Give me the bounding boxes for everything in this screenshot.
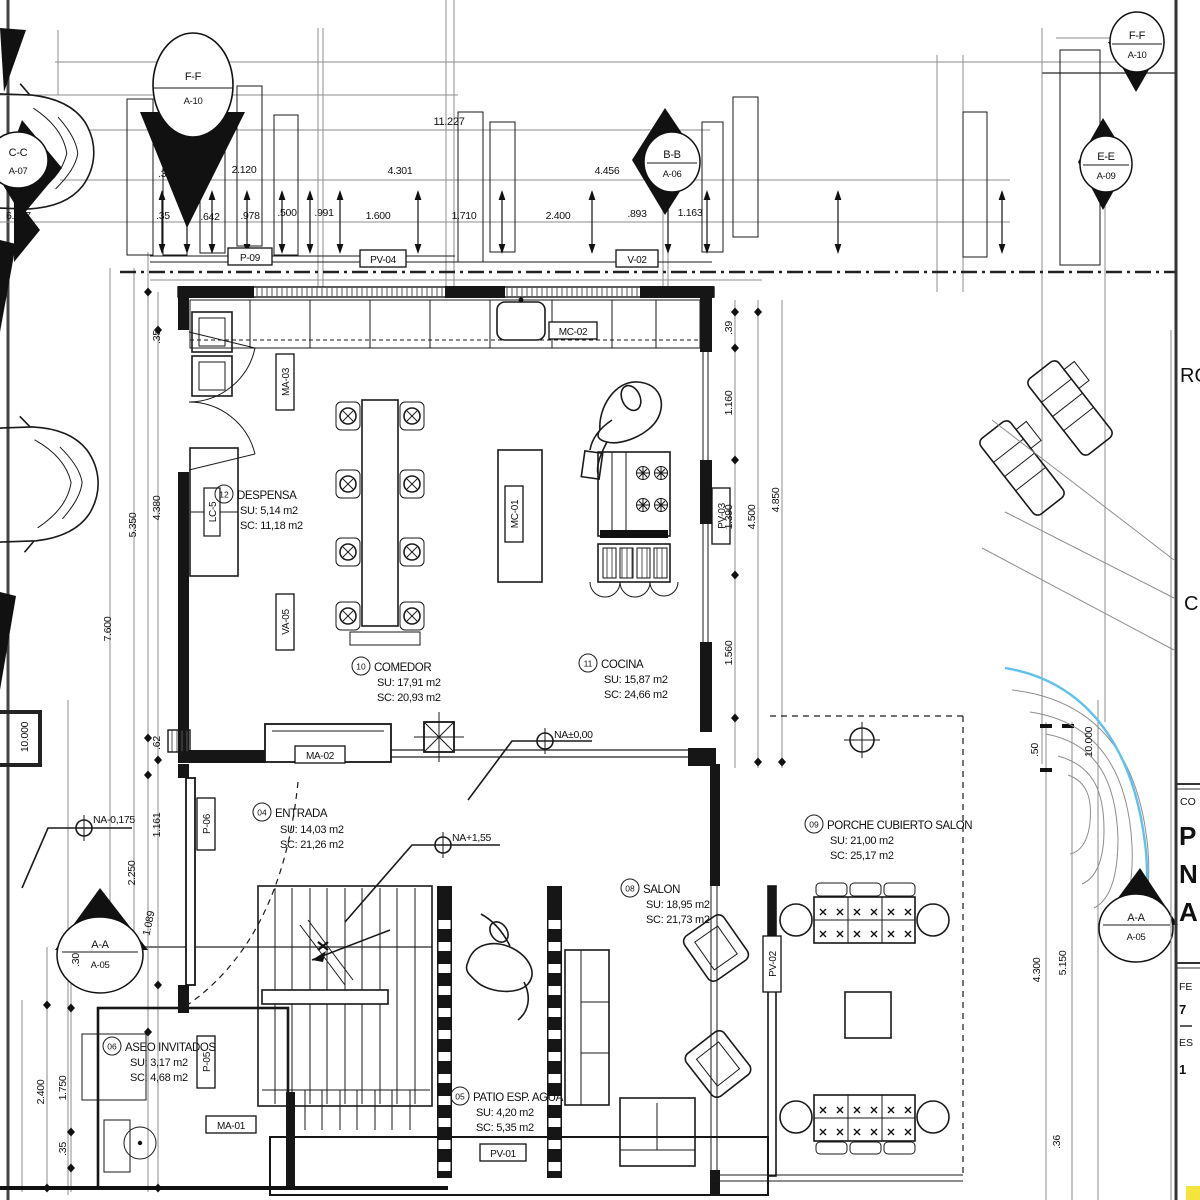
dining-area <box>336 400 424 645</box>
svg-text:PV-01: PV-01 <box>490 1149 516 1160</box>
svg-text:SC: 11,18 m2: SC: 11,18 m2 <box>240 520 303 532</box>
tag-pv02: PV-02 <box>763 936 781 992</box>
room-label-salon: 08 SALON SU: 18,95 m2 SC: 21,73 m2 <box>621 879 710 926</box>
dim: 4.301 <box>388 165 413 177</box>
tag-lc5: LC-5 <box>204 488 220 536</box>
dim: 1.600 <box>366 210 391 222</box>
svg-text:PV-02: PV-02 <box>768 950 779 976</box>
section-marker-ee: E-E A-09 <box>1078 118 1132 210</box>
room-label-entrada: 04 ENTRADA SU: 14,03 m2 SC: 21,26 m2 <box>253 803 344 851</box>
svg-text:09: 09 <box>809 820 819 830</box>
patio-figure <box>466 914 532 1020</box>
svg-text:MA-01: MA-01 <box>217 1121 246 1132</box>
svg-text:PORCHE CUBIERTO SALON: PORCHE CUBIERTO SALON <box>827 820 972 832</box>
svg-text:PV-04: PV-04 <box>370 255 396 266</box>
titleblock-text-ro: RO <box>1180 365 1200 387</box>
dim: 1.390 <box>723 504 735 529</box>
svg-text:ENTRADA: ENTRADA <box>275 808 328 820</box>
property-line <box>120 272 1175 280</box>
svg-text:PATIO ESP. AGUA: PATIO ESP. AGUA <box>473 1092 564 1104</box>
svg-text:SU: 18,95 m2: SU: 18,95 m2 <box>646 899 710 911</box>
person-figure <box>581 382 661 479</box>
svg-text:DESPENSA: DESPENSA <box>237 490 297 502</box>
aseo-fixtures <box>82 1034 156 1172</box>
dim: 5.150 <box>1057 950 1069 975</box>
dim: 11.227 <box>433 116 464 128</box>
marker-label: F-F <box>1129 30 1146 42</box>
svg-text:MA-03: MA-03 <box>281 367 292 396</box>
marker-label: F-F <box>185 71 202 83</box>
dim: .50 <box>1029 743 1041 757</box>
svg-text:P-09: P-09 <box>240 253 261 264</box>
room-label-comedor: 10 COMEDOR SU: 17,91 m2 SC: 20,93 m2 <box>352 657 441 704</box>
tag-mc02: MC-02 <box>549 322 597 339</box>
svg-text:MC-02: MC-02 <box>559 327 588 338</box>
marker-sheet: A-10 <box>1128 50 1147 61</box>
dim: .642 <box>200 211 220 223</box>
dim: 4.300 <box>1031 957 1043 982</box>
titleblock-text-fe: FE <box>1179 981 1192 993</box>
floor-plan-canvas: F-F A-10 F-F A-10 C-C A-07 B-B A-06 E-E … <box>0 0 1200 1200</box>
dim: 1.560 <box>723 640 735 665</box>
svg-text:11: 11 <box>584 659 593 669</box>
svg-text:SU: 15,87 m2: SU: 15,87 m2 <box>604 674 668 686</box>
floor-plan-svg: F-F A-10 F-F A-10 C-C A-07 B-B A-06 E-E … <box>0 0 1200 1200</box>
svg-text:SC: 20,93 m2: SC: 20,93 m2 <box>377 692 441 704</box>
svg-text:SALON: SALON <box>643 884 680 896</box>
svg-text:SC: 25,17 m2: SC: 25,17 m2 <box>830 850 894 862</box>
porch-furniture <box>780 883 949 1154</box>
marker-sheet: A-10 <box>184 96 203 107</box>
svg-text:SC: 21,73 m2: SC: 21,73 m2 <box>646 914 710 926</box>
dim: 7.600 <box>102 616 114 641</box>
dim: 10.000 <box>19 721 31 752</box>
svg-text:V-02: V-02 <box>627 255 647 266</box>
svg-text:MC-01: MC-01 <box>510 499 521 528</box>
marker-label: E-E <box>1097 151 1114 163</box>
level-zero: NA±0,00 <box>468 728 593 800</box>
highlight-square <box>1186 1186 1200 1200</box>
section-marker-bb: B-B A-06 <box>632 108 700 215</box>
salon-furniture <box>565 912 754 1166</box>
marker-label: B-B <box>663 149 680 161</box>
dim: 4.500 <box>746 504 758 529</box>
dim: .893 <box>627 208 647 220</box>
titleblock-text-p: P <box>1179 821 1196 851</box>
section-marker-aa-right: A-A A-05 <box>1098 868 1178 962</box>
tag-ma03: MA-03 <box>276 354 294 410</box>
tag-pv04: PV-04 <box>360 250 406 267</box>
dim: 1.161 <box>151 812 163 837</box>
dim: .500 <box>277 207 297 219</box>
svg-text:SU: 14,03 m2: SU: 14,03 m2 <box>280 824 344 836</box>
dim: .30 <box>70 953 82 967</box>
dim: 1.089 <box>141 910 158 937</box>
dim: 10.000 <box>1083 726 1095 757</box>
marker-sheet: A-07 <box>9 166 28 177</box>
marker-label: A-A <box>1127 912 1145 924</box>
window-strip <box>127 50 1100 265</box>
cars <box>0 28 100 690</box>
section-marker-ff-right: F-F A-10 <box>1108 12 1165 92</box>
tag-p09: P-09 <box>228 248 272 265</box>
dim: .978 <box>240 210 260 222</box>
svg-text:VA-05: VA-05 <box>281 608 292 634</box>
svg-text:NA+1,55: NA+1,55 <box>452 832 492 844</box>
svg-text:04: 04 <box>257 808 267 818</box>
marker-label: A-A <box>91 939 109 951</box>
tag-p06: P-06 <box>197 798 215 850</box>
tag-v02: V-02 <box>616 250 658 267</box>
room-label-porche: 09 PORCHE CUBIERTO SALON SU: 21,00 m2 SC… <box>805 815 972 862</box>
svg-text:SU: 17,91 m2: SU: 17,91 m2 <box>377 677 441 689</box>
svg-text:SU: 4,20 m2: SU: 4,20 m2 <box>476 1107 534 1119</box>
titleblock-text-a: A <box>1179 897 1198 927</box>
sink <box>497 302 545 340</box>
section-markers: F-F A-10 F-F A-10 C-C A-07 B-B A-06 E-E … <box>0 12 1178 993</box>
dining-table <box>362 400 398 626</box>
tag-ma02: MA-02 <box>295 746 345 763</box>
svg-text:COMEDOR: COMEDOR <box>374 662 431 674</box>
room-label-despensa: 12 DESPENSA SU: 5,14 m2 SC: 11,18 m2 <box>215 485 303 532</box>
marker-label: C-C <box>9 147 28 159</box>
titleblock-text-7: 7 <box>1179 1002 1186 1017</box>
dim: 1.750 <box>57 1075 69 1100</box>
svg-text:SC: 5,35 m2: SC: 5,35 m2 <box>476 1122 534 1134</box>
svg-text:08: 08 <box>625 884 635 894</box>
dim: .36 <box>1051 1135 1063 1149</box>
dim: .35 <box>151 330 163 344</box>
dim: .991 <box>314 207 334 219</box>
level-upper: NA+1,55 <box>345 832 500 922</box>
svg-text:MA-02: MA-02 <box>306 751 335 762</box>
svg-text:P-05: P-05 <box>202 1051 213 1072</box>
dim: 2.400 <box>35 1079 47 1104</box>
titleblock-text-es: ES <box>1179 1037 1193 1049</box>
room-label-patio: 05 PATIO ESP. AGUA SU: 4,20 m2 SC: 5,35 … <box>451 1087 564 1134</box>
svg-text:05: 05 <box>455 1092 465 1102</box>
marker-sheet: A-06 <box>663 169 682 180</box>
level-minus: NA-0,175 <box>22 814 135 888</box>
marker-sheet: A-09 <box>1097 171 1116 182</box>
svg-text:SU: 5,14 m2: SU: 5,14 m2 <box>240 505 298 517</box>
dim: .35 <box>57 1142 69 1156</box>
svg-text:NA±0,00: NA±0,00 <box>554 729 593 741</box>
titleblock-text-n: N <box>1179 859 1198 889</box>
dim: 1.710 <box>452 210 477 222</box>
tag-pv01: PV-01 <box>480 1144 526 1161</box>
dim: .35 <box>158 168 172 180</box>
svg-text:SC: 4,68 m2: SC: 4,68 m2 <box>130 1072 188 1084</box>
dim: 1.160 <box>723 390 735 415</box>
title-block: RO C CO P N A FE 7 ES 1 <box>1171 0 1200 1200</box>
loungers <box>977 350 1124 517</box>
tag-va05: VA-05 <box>276 594 294 650</box>
titleblock-text-co: CO <box>1180 796 1196 808</box>
dim: 4.850 <box>770 487 782 512</box>
element-tags: P-09 PV-04 V-02 MC-02 MA-03 LC-5 VA-05 M… <box>197 248 781 1161</box>
svg-text:SC: 21,26 m2: SC: 21,26 m2 <box>280 839 344 851</box>
dim: 1.163 <box>678 207 703 219</box>
room-label-cocina: 11 COCINA SU: 15,87 m2 SC: 24,66 m2 <box>579 654 668 701</box>
svg-text:SU: 3,17 m2: SU: 3,17 m2 <box>130 1057 188 1069</box>
dim: .35 <box>156 210 170 222</box>
tag-ma01: MA-01 <box>206 1116 256 1133</box>
titleblock-text-1: 1 <box>1179 1062 1186 1077</box>
kitchen <box>190 298 700 598</box>
svg-text:COCINA: COCINA <box>601 659 644 671</box>
stove <box>590 452 678 597</box>
dim: .62 <box>151 736 163 750</box>
svg-text:06: 06 <box>107 1042 117 1052</box>
dim: 2.120 <box>232 164 257 176</box>
svg-text:P-06: P-06 <box>202 813 213 834</box>
svg-text:ASEO INVITADOS: ASEO INVITADOS <box>125 1042 216 1054</box>
dim: 6.167 <box>6 210 31 222</box>
svg-text:10: 10 <box>356 662 366 672</box>
svg-text:LC-5: LC-5 <box>208 501 219 522</box>
svg-text:NA-0,175: NA-0,175 <box>93 814 135 826</box>
svg-text:12: 12 <box>219 490 229 500</box>
svg-text:SC: 24,66 m2: SC: 24,66 m2 <box>604 689 668 701</box>
dim: 2.250 <box>126 860 138 885</box>
tag-mc01: MC-01 <box>505 486 523 542</box>
marker-sheet: A-05 <box>91 960 110 971</box>
dim: 2.400 <box>546 210 571 222</box>
titleblock-text-c: C <box>1184 593 1198 615</box>
dim: 5.350 <box>127 512 139 537</box>
dim: 4.380 <box>151 495 163 520</box>
marker-sheet: A-05 <box>1127 932 1146 943</box>
pool-curves <box>982 420 1174 952</box>
dim: 4.456 <box>595 165 620 177</box>
svg-text:SU: 21,00 m2: SU: 21,00 m2 <box>830 835 894 847</box>
dim: .39 <box>723 321 735 335</box>
